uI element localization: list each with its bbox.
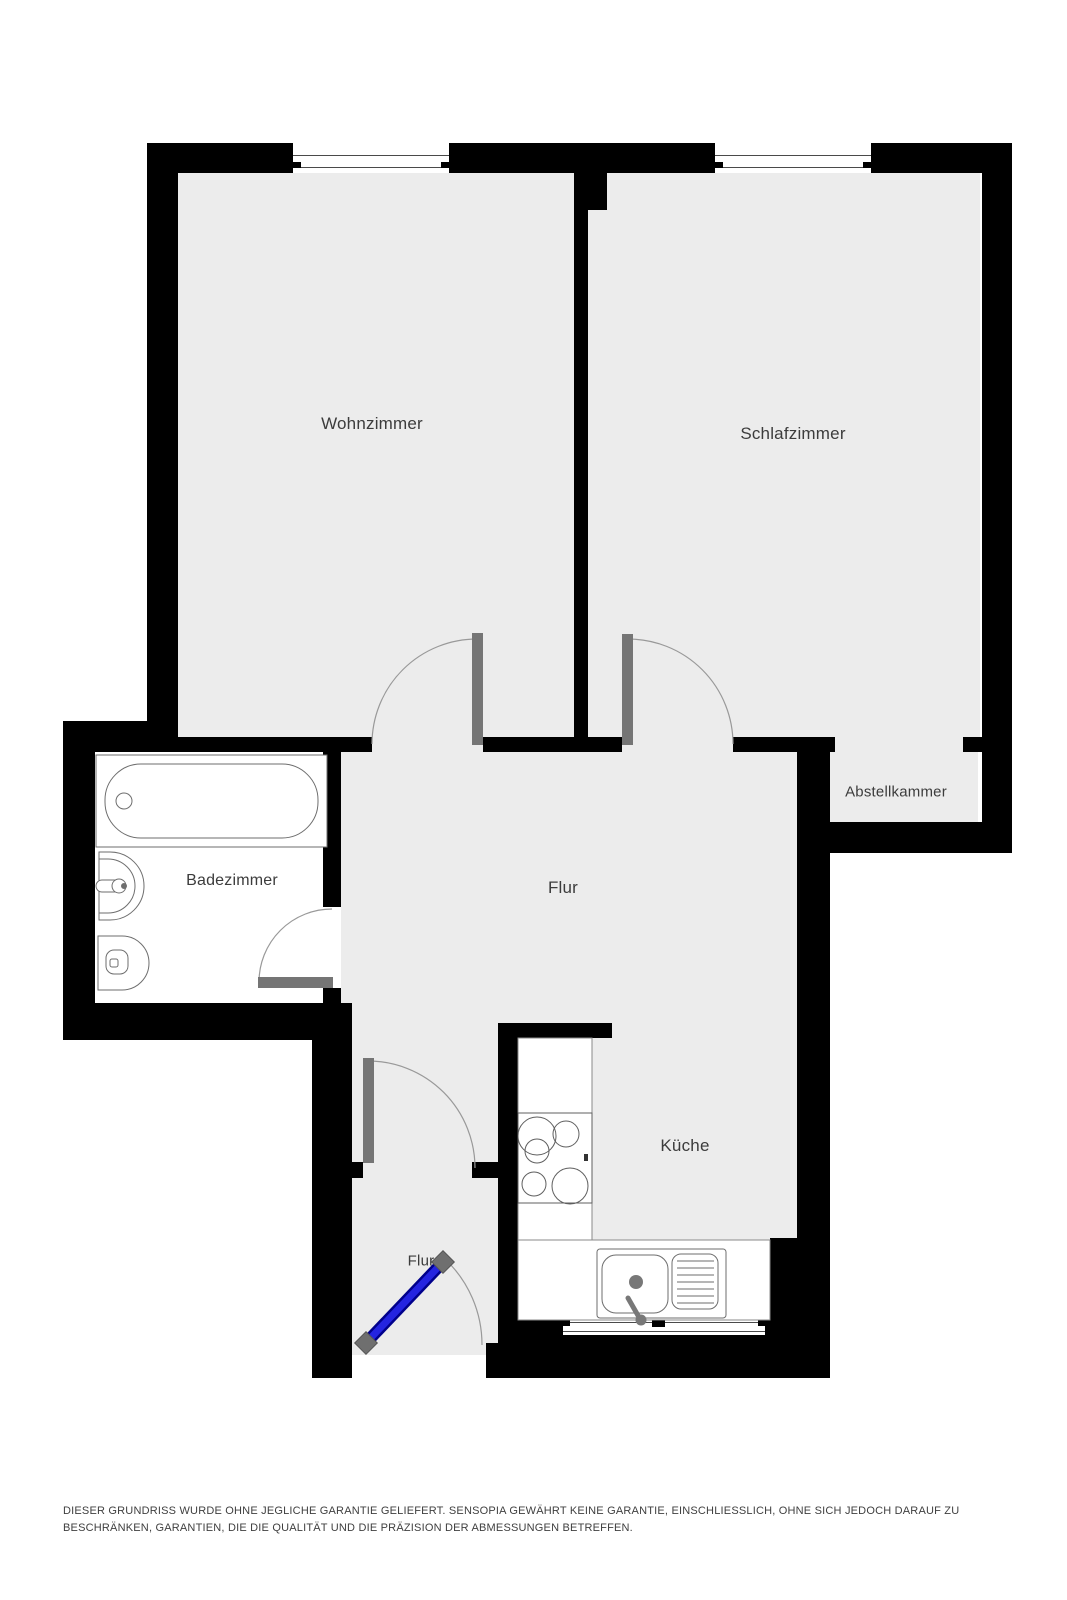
room-label-schlafzimmer: Schlafzimmer: [740, 424, 845, 444]
wall-schlafzimmer-bottom: [733, 737, 835, 752]
wall-wohnzimmer-bottom: [178, 737, 372, 752]
window-schlafzimmer-icon: [715, 143, 871, 173]
flur2-floor: [352, 1040, 498, 1343]
wall-top-middle: [449, 143, 715, 173]
wall-divider-stub: [588, 173, 607, 210]
drainboard-icon: [672, 1254, 718, 1309]
wohnzimmer-door-gap: [372, 737, 483, 752]
room-label-kueche: Küche: [660, 1136, 709, 1156]
wall-corner-bottom-left: [312, 1333, 352, 1378]
room-label-abstellkammer: Abstellkammer: [845, 784, 947, 801]
wall-flur2-divider-left: [348, 1162, 363, 1178]
wall-abstell-bottom: [815, 822, 1012, 853]
wall-right-outer: [982, 143, 1012, 853]
wall-flur2-left: [312, 1003, 352, 1343]
kitchen-sink-icon: [597, 1249, 726, 1326]
bathtub-icon: [96, 755, 327, 847]
wall-entrance-right: [486, 1343, 518, 1378]
entrance-threshold: [352, 1343, 488, 1355]
wall-kueche-bottom-2: [765, 1320, 830, 1378]
abstellkammer-passage: [835, 737, 963, 752]
wall-between-doors: [483, 737, 622, 752]
wall-room-divider: [574, 173, 588, 752]
room-label-wohnzimmer: Wohnzimmer: [321, 414, 423, 434]
disclaimer-text: DIESER GRUNDRISS WURDE OHNE JEGLICHE GAR…: [63, 1503, 1013, 1537]
window-kueche-icon: [563, 1320, 765, 1335]
room-label-flur: Flur: [548, 878, 578, 898]
room-label-badezimmer: Badezimmer: [186, 872, 278, 890]
wall-left-upper: [147, 143, 178, 721]
wall-bath-right-lower: [323, 988, 341, 1040]
wall-bath-bottom: [63, 1003, 352, 1040]
room-label-flur-eingang: Flur: [408, 1253, 435, 1270]
wall-left-lower: [63, 721, 95, 1040]
window-wohnzimmer-icon: [293, 143, 449, 173]
schlafzimmer-floor: [588, 173, 980, 737]
wall-abstell-jamb: [963, 737, 982, 752]
wall-kueche-left: [498, 1023, 518, 1378]
badezimmer-door-gap: [323, 907, 341, 988]
wall-under-kitchen-window: [563, 1335, 765, 1378]
stove-icon: [518, 1113, 592, 1204]
wall-flur2-divider-right: [472, 1162, 498, 1178]
floor-plan: Wohnzimmer Schlafzimmer Abstellkammer Ba…: [0, 0, 1067, 1600]
schlafzimmer-door-gap: [622, 737, 733, 752]
wall-kueche-bottom-1: [518, 1320, 563, 1378]
wohnzimmer-floor: [178, 173, 574, 737]
toilet-icon: [98, 936, 149, 990]
